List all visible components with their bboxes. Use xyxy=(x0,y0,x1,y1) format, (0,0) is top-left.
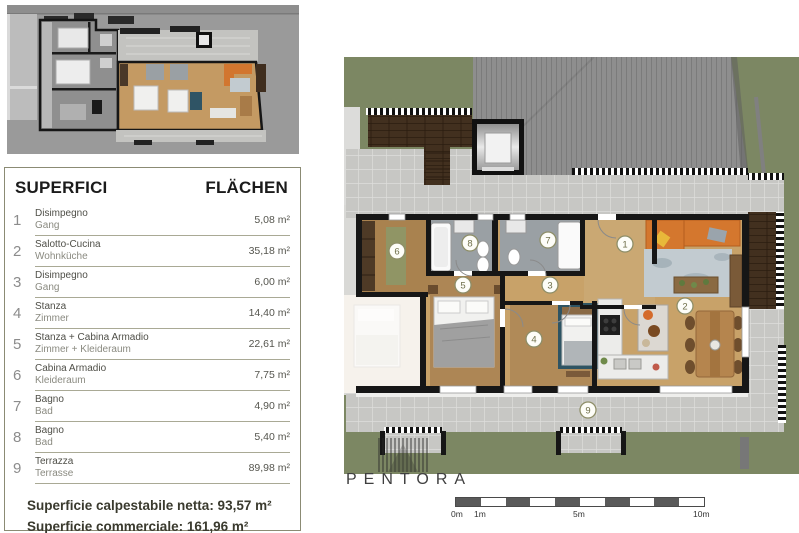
room-marker-3: 3 xyxy=(542,277,558,293)
svg-text:7: 7 xyxy=(545,236,550,247)
room-area: 22,61 m² xyxy=(249,338,290,350)
table-row: 4 Stanza Zimmer 14,40 m² xyxy=(13,298,290,329)
scale-label-10m: 10m xyxy=(693,509,710,519)
room-area: 89,98 m² xyxy=(249,462,290,474)
room-name-de: Zimmer + Kleideraum xyxy=(35,344,249,357)
table-row: 3 Disimpegno Gang 6,00 m² xyxy=(13,267,290,298)
room-name-it: Stanza xyxy=(35,301,249,314)
scale-label-0m: 0m xyxy=(451,509,463,519)
svg-text:9: 9 xyxy=(585,406,590,417)
overview-surroundings xyxy=(7,14,37,120)
brand-name: PENTORA xyxy=(346,471,472,489)
table-row: 1 Disimpegno Gang 5,08 m² xyxy=(13,205,290,236)
overview-neighbour-unit xyxy=(40,20,118,130)
svg-text:4: 4 xyxy=(531,335,536,346)
room-marker-2: 2 xyxy=(677,298,693,314)
room-marker-5: 5 xyxy=(455,277,471,293)
room-name-it: Bagno xyxy=(35,425,254,438)
svg-text:5: 5 xyxy=(460,281,465,292)
room-marker-6: 6 xyxy=(389,243,405,259)
room-number: 8 xyxy=(13,422,35,453)
room-name-it: Cabina Armadio xyxy=(35,363,254,376)
room-marker-9: 9 xyxy=(580,402,596,418)
room-number: 6 xyxy=(13,360,35,391)
room-marker-7: 7 xyxy=(540,232,556,248)
room-area: 14,40 m² xyxy=(249,307,290,319)
svg-text:8: 8 xyxy=(467,239,472,250)
svg-text:2: 2 xyxy=(682,302,687,313)
table-row: 9 Terrazza Terrasse 89,98 m² xyxy=(13,453,290,484)
scale-label-1m: 1m xyxy=(474,509,486,519)
room-name-de: Gang xyxy=(35,282,254,295)
neighbour-room-faded xyxy=(344,295,424,393)
net-area-total: Superficie calpestabile netta: 93,57 m² xyxy=(27,496,290,517)
bed-room5 xyxy=(428,285,504,367)
pentora-logo-icon xyxy=(376,428,430,472)
scale-label-5m: 5m xyxy=(573,509,585,519)
overview-subject-unit xyxy=(116,62,266,145)
room-marker-8: 8 xyxy=(462,235,478,251)
area-legend: SUPERFICI FLÄCHEN 1 Disimpegno Gang 5,08… xyxy=(4,167,301,531)
table-row: 6 Cabina Armadio Kleideraum 7,75 m² xyxy=(13,360,290,391)
room-name-de: Bad xyxy=(35,406,254,419)
room-area: 6,00 m² xyxy=(254,276,290,288)
room-area: 5,40 m² xyxy=(254,431,290,443)
room-area: 7,75 m² xyxy=(254,369,290,381)
room-name-it: Terrazza xyxy=(35,456,249,469)
room-name-it: Salotto-Cucina xyxy=(35,239,249,252)
room-name-de: Zimmer xyxy=(35,313,249,326)
scale-bar xyxy=(455,497,705,507)
commercial-area-total: Superficie commerciale: 161,96 m² xyxy=(27,517,290,533)
room-number: 9 xyxy=(13,453,35,484)
svg-text:6: 6 xyxy=(394,247,399,258)
room-name-it: Bagno xyxy=(35,394,254,407)
room-marker-4: 4 xyxy=(526,331,542,347)
room-name-it: Disimpegno xyxy=(35,270,254,283)
room-number: 4 xyxy=(13,298,35,329)
room-number: 3 xyxy=(13,267,35,298)
room-number: 5 xyxy=(13,329,35,360)
table-row: 2 Salotto-Cucina Wohnküche 35,18 m² xyxy=(13,236,290,267)
room-name-it: Disimpegno xyxy=(35,208,254,221)
room-name-de: Bad xyxy=(35,437,254,450)
room-name-de: Kleideraum xyxy=(35,375,254,388)
room-number: 1 xyxy=(13,205,35,236)
room-name-de: Terrasse xyxy=(35,468,249,481)
svg-text:1: 1 xyxy=(622,240,627,251)
room-name-de: Gang xyxy=(35,220,254,233)
table-row: 8 Bagno Bad 5,40 m² xyxy=(13,422,290,453)
dining-table xyxy=(685,311,743,377)
main-floor-plan: 1 2 3 4 5 6 7 8 xyxy=(344,57,799,474)
legend-title-german: FLÄCHEN xyxy=(205,178,288,198)
side-deck xyxy=(748,212,776,309)
totals-block: Superficie calpestabile netta: 93,57 m² … xyxy=(27,496,290,533)
scale-labels: 0m 1m 5m 10m xyxy=(455,509,715,521)
svg-text:3: 3 xyxy=(547,281,552,292)
overview-roof-terrace xyxy=(118,26,258,62)
room-name-it: Stanza + Cabina Armadio xyxy=(35,332,249,345)
overview-plan xyxy=(0,0,306,160)
legend-header: SUPERFICI FLÄCHEN xyxy=(13,176,290,205)
table-row: 5 Stanza + Cabina Armadio Zimmer + Kleid… xyxy=(13,329,290,360)
table-row: 7 Bagno Bad 4,90 m² xyxy=(13,391,290,422)
room-number: 2 xyxy=(13,236,35,267)
legend-title-italian: SUPERFICI xyxy=(15,178,107,198)
room-number: 7 xyxy=(13,391,35,422)
room-area: 35,18 m² xyxy=(249,245,290,257)
room-name-de: Wohnküche xyxy=(35,251,249,264)
elevator xyxy=(472,119,524,175)
room-area: 5,08 m² xyxy=(254,214,290,226)
room-marker-1: 1 xyxy=(617,236,633,252)
floorplan-sheet: SUPERFICI FLÄCHEN 1 Disimpegno Gang 5,08… xyxy=(0,0,799,533)
room-area: 4,90 m² xyxy=(254,400,290,412)
